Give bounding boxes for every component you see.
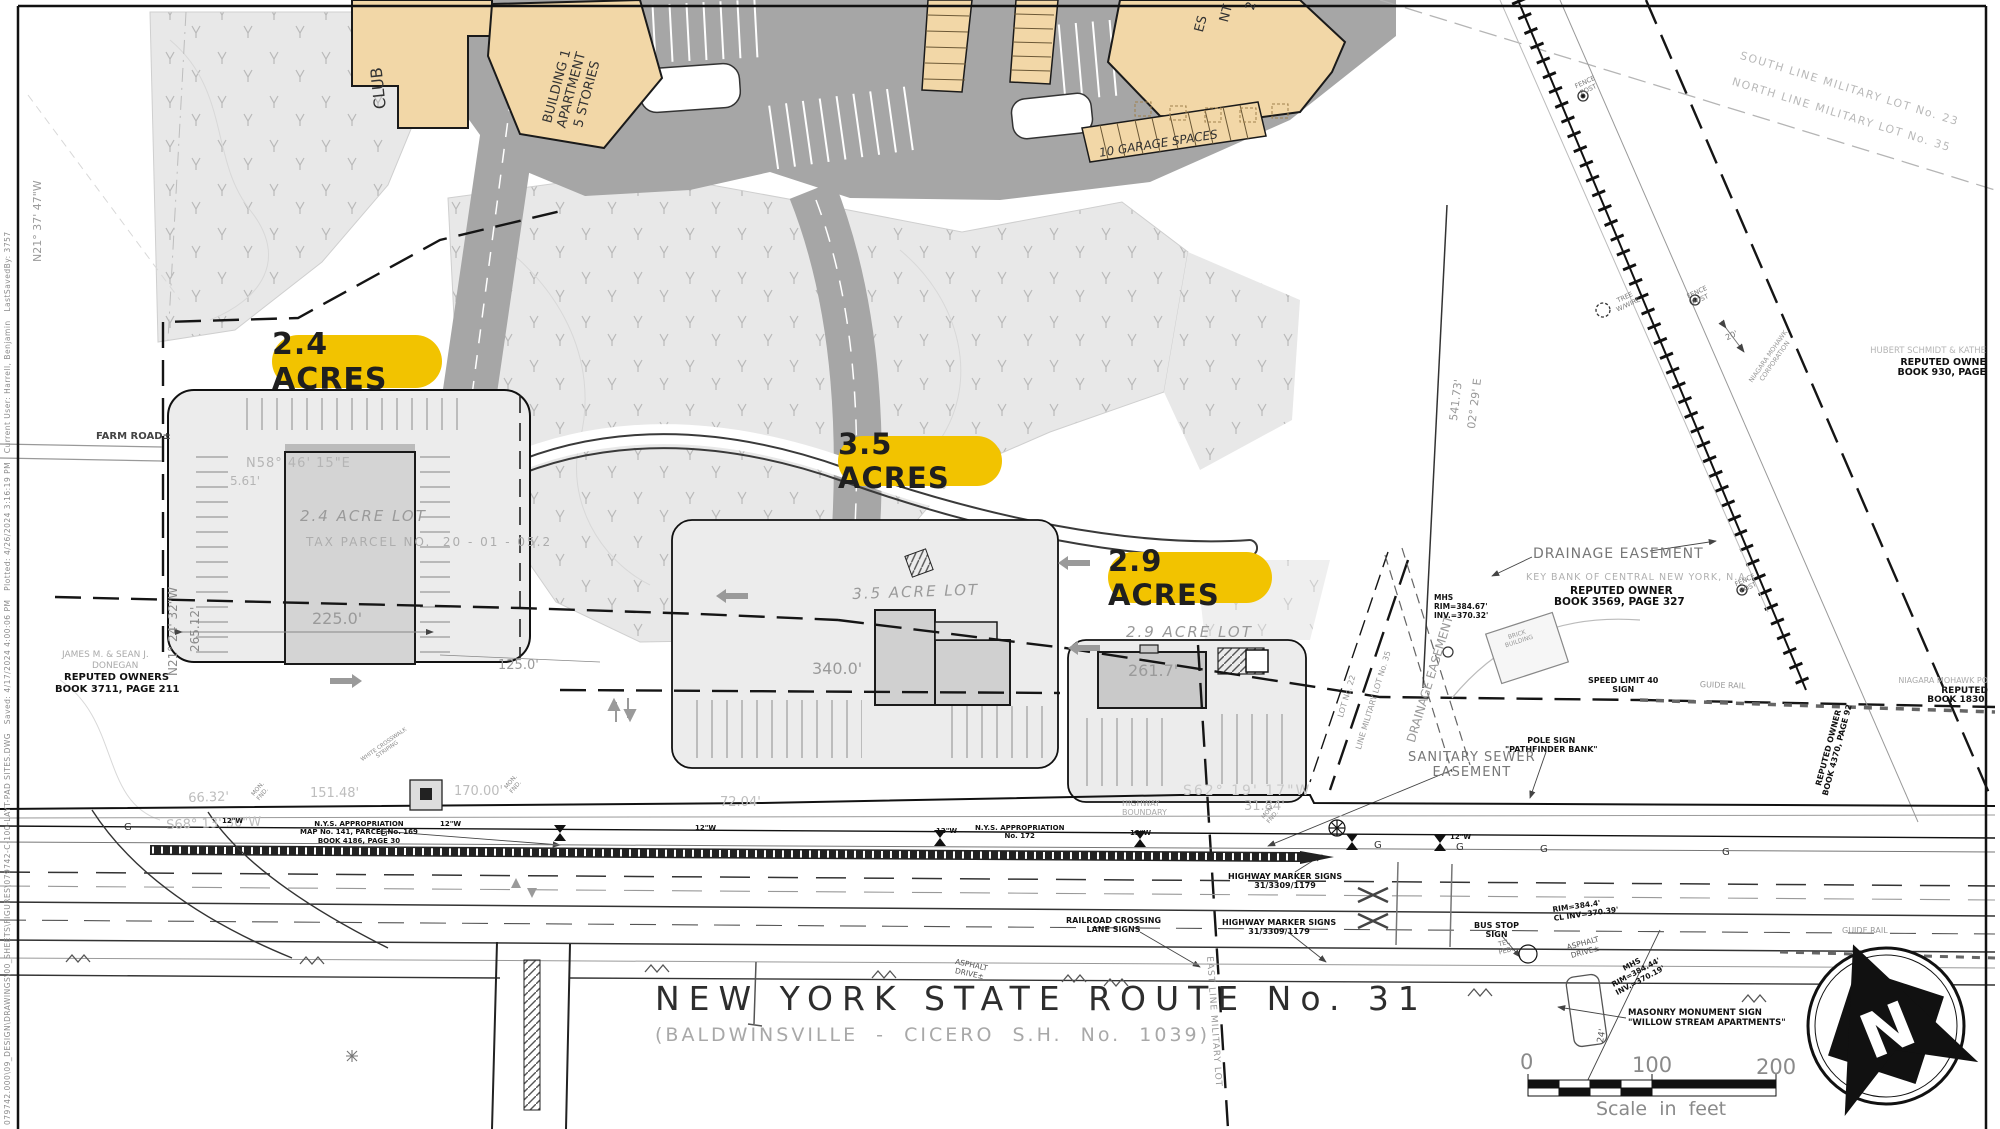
dim-26512: 265.12'	[188, 607, 202, 652]
utility-12w: 12"W	[222, 817, 243, 825]
dim-261: 261.7'	[1128, 662, 1178, 681]
note-nys-appropriation-2: N.Y.S. APPROPRIATION No. 172	[975, 824, 1064, 841]
label-tax-parcel: TAX PARCEL NO. 20 - 01 - 05.2	[306, 535, 552, 549]
utility-gas: G	[1456, 842, 1464, 854]
note-guide-rail: GUIDE RAIL	[1700, 680, 1746, 691]
site-plan-linework: N	[0, 0, 2000, 1129]
scale-tick-100: 100	[1632, 1053, 1672, 1078]
utility-12w: 12"W	[936, 827, 957, 835]
note-keybank: KEY BANK OF CENTRAL NEW YORK, N.A.	[1526, 572, 1750, 583]
note-guide-rail: GUIDE RAIL	[1842, 926, 1888, 935]
owner-schmidt: BOOK 930, PAGE	[1836, 367, 1986, 378]
utility-12w: 12"W	[1450, 833, 1471, 841]
label-lot-24: 2.4 ACRE LOT	[300, 508, 427, 526]
utility-gas: G	[380, 828, 388, 840]
utility-gas: G	[1374, 840, 1382, 852]
utility-12w: 12"W	[440, 820, 461, 828]
dim-7204: 72.04'	[720, 795, 761, 810]
utility-gas: G	[1722, 847, 1730, 859]
bearing-s6219: S62° 19' 17"W	[1183, 783, 1311, 800]
acreage-badge-3-5: 3.5 ACRES	[838, 436, 1002, 486]
owner-donegan: DONEGAN	[92, 661, 138, 672]
label-lot-29: 2.9 ACRE LOT	[1126, 624, 1253, 642]
note-railroad-signs: RAILROAD CROSSING LANE SIGNS	[1066, 916, 1161, 935]
bearing-n5846: N58° 46' 15"E	[246, 456, 351, 471]
acreage-badge-2-4: 2.4 ACRES	[272, 335, 442, 388]
north-arrow: N	[1786, 917, 1978, 1116]
note-niagara-owner: BOOK 1830,	[1878, 695, 1988, 706]
note-marker-signs: HIGHWAY MARKER SIGNS 31/3309/1179	[1228, 872, 1342, 891]
dim-6632: 66.32'	[188, 790, 229, 807]
lot-29-acre	[1068, 640, 1306, 802]
dim-340: 340.0'	[812, 660, 862, 679]
note-keybank: BOOK 3569, PAGE 327	[1554, 596, 1685, 608]
scale-caption: Scale in feet	[1596, 1098, 1726, 1120]
note-niagara-owner: NIAGARA MOHAWK PO	[1878, 676, 1988, 685]
note-masonry-sign: MASONRY MONUMENT SIGN "WILLOW STREAM APA…	[1628, 1008, 1786, 1028]
bearing-n2137: N21° 37' 47"W	[32, 180, 45, 262]
owner-schmidt: HUBERT SCHMIDT & KATHE	[1836, 346, 1986, 356]
note-nys-appropriation: N.Y.S. APPROPRIATION MAP No. 141, PARCEL…	[300, 820, 418, 845]
dim-125: 125.0'	[498, 658, 539, 673]
note-bus-stop: BUS STOP SIGN	[1474, 921, 1519, 940]
note-marker-signs: HIGHWAY MARKER SIGNS 31/3309/1179	[1222, 918, 1336, 937]
note-sanitary-sewer: SANITARY SEWER EASEMENT	[1408, 750, 1536, 781]
dim-15148: 151.48'	[310, 786, 359, 801]
owner-donegan: JAMES M. & SEAN J.	[62, 650, 149, 661]
lot-35-acre	[672, 520, 1058, 768]
utility-gas: G	[124, 822, 132, 834]
scale-tick-200: 200	[1756, 1055, 1796, 1080]
utility-gas: G	[1540, 844, 1548, 856]
dim-170: 170.00'	[454, 784, 503, 799]
route-title: NEW YORK STATE ROUTE No. 31	[655, 980, 1160, 1019]
scale-tick-0: 0	[1520, 1050, 1533, 1075]
site-plan-sheet: N FARM ROAD± CLUB BUILDING 1 APARTMENT 5…	[0, 0, 2000, 1129]
acreage-badge-2-9: 2.9 ACRES	[1108, 552, 1272, 603]
owner-donegan: REPUTED OWNERS	[64, 672, 169, 684]
farm-road-lines	[0, 444, 162, 461]
utility-12w: 12"W	[695, 824, 716, 832]
note-highway-boundary: HIGHWAY BOUNDARY	[1122, 799, 1167, 818]
note-mhs-north: MHS RIM=384.67' INV.=370.32'	[1434, 594, 1488, 621]
note-speed-limit: SPEED LIMIT 40 SIGN	[1588, 676, 1658, 695]
route-subtitle: (BALDWINSVILLE - CICERO S.H. No. 1039)	[655, 1024, 1160, 1046]
dim-561: 5.61'	[230, 474, 260, 488]
label-farm-road: FARM ROAD±	[96, 431, 171, 443]
plot-stamp: 079742.000\09_DESIGN\DRAWINGS\00_SHEETS\…	[4, 231, 13, 1125]
utility-12w: 12"W	[1130, 829, 1151, 837]
dim-225: 225.0'	[312, 610, 362, 629]
note-drainage-easement: DRAINAGE EASEMENT	[1533, 546, 1704, 563]
owner-donegan: BOOK 3711, PAGE 211	[55, 684, 180, 696]
bearing-n2124: N21° 24' 32"W	[166, 587, 180, 676]
